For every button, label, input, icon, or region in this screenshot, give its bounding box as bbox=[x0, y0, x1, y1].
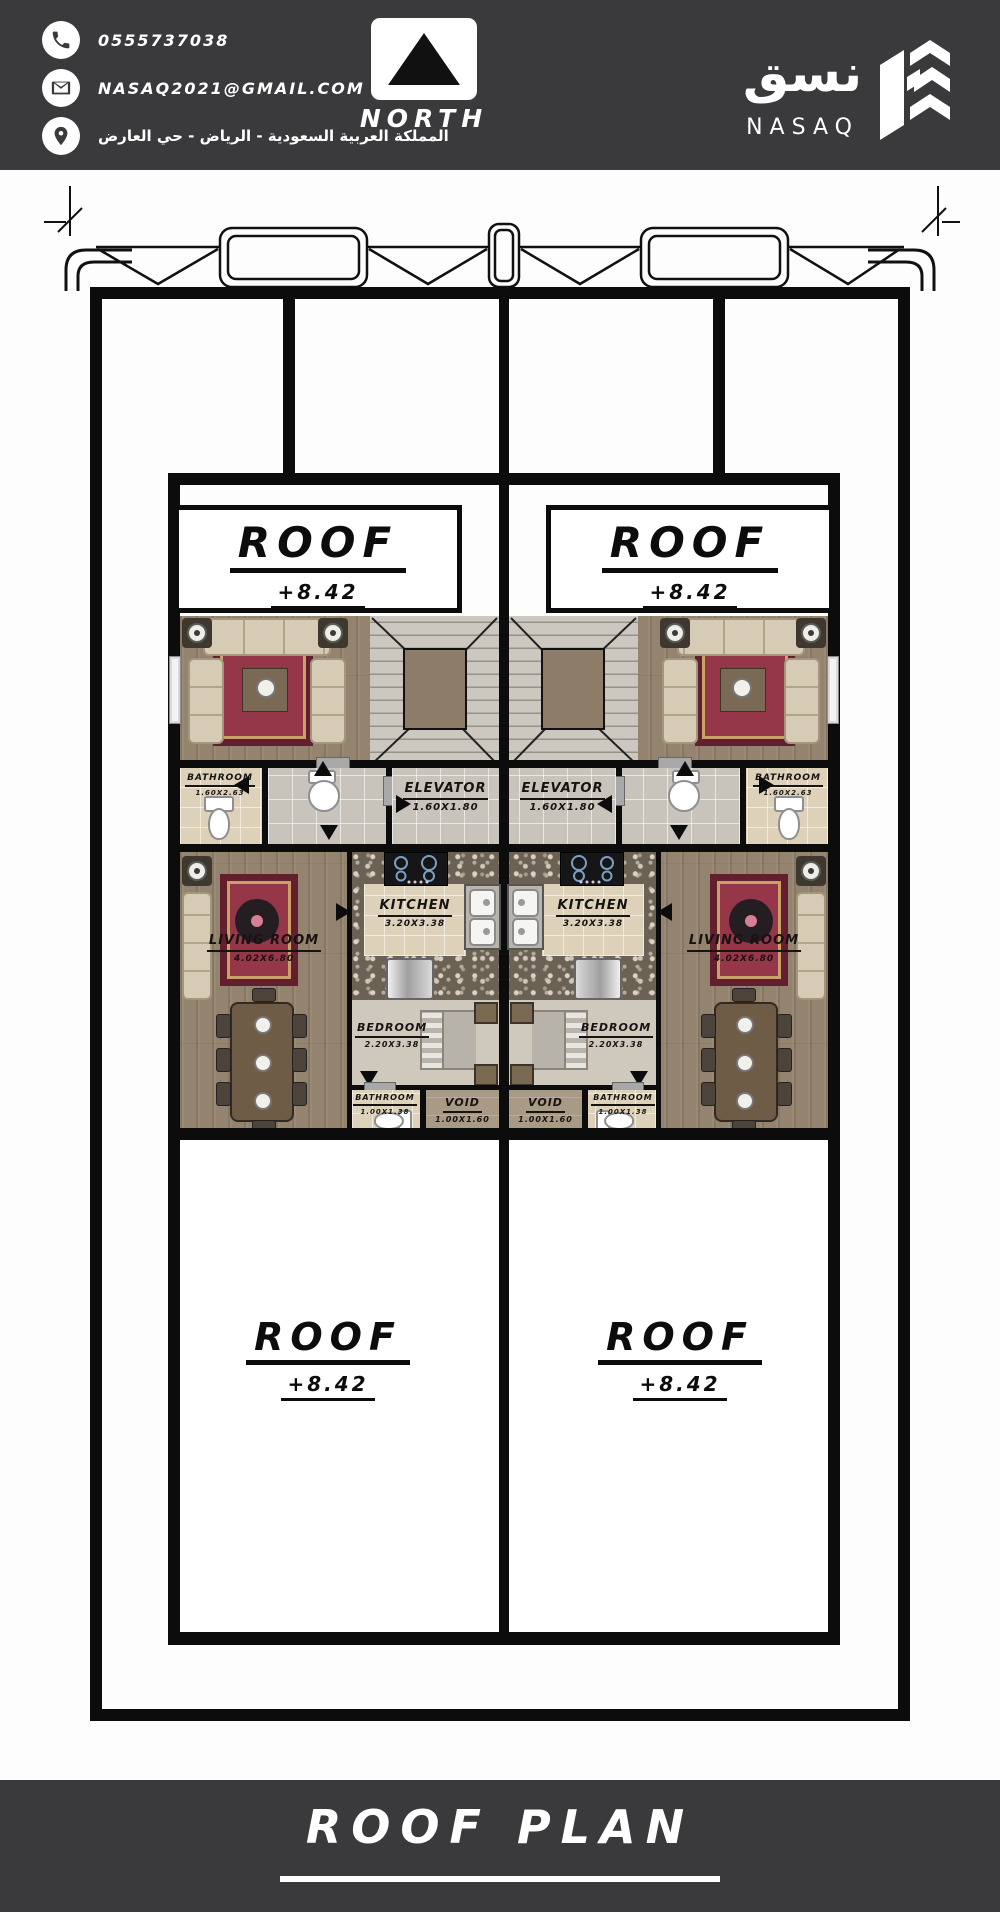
room-label-bathroom2: BATHROOM 1.00X1.38 bbox=[590, 1093, 656, 1117]
chair bbox=[777, 1082, 792, 1106]
door-arrow-icon bbox=[320, 825, 338, 840]
plate bbox=[736, 1054, 754, 1072]
chair bbox=[216, 1014, 231, 1038]
pedestal-sink bbox=[668, 780, 700, 812]
north-indicator-box bbox=[371, 18, 477, 100]
room-label-bedroom: BEDROOM 2.20X3.38 bbox=[579, 1021, 653, 1050]
plate bbox=[254, 1016, 272, 1034]
door-arrow-icon bbox=[396, 795, 411, 813]
dimension-hook-right bbox=[922, 186, 960, 236]
bed-blanket bbox=[442, 1012, 476, 1068]
chair bbox=[701, 1048, 716, 1072]
stair-landing bbox=[403, 648, 467, 730]
coffee-table-plate bbox=[732, 678, 752, 698]
unit-side-wall bbox=[168, 473, 180, 1645]
chair bbox=[777, 1048, 792, 1072]
unit-right: ROOF +8.42 LIVING ROOM 3.40X4.40 bbox=[509, 473, 840, 1645]
interior-wall bbox=[168, 1128, 499, 1140]
room-living2 bbox=[180, 852, 347, 1134]
chair bbox=[292, 1082, 307, 1106]
party-wall bbox=[499, 287, 509, 1645]
roof-level: +8.42 bbox=[643, 580, 736, 609]
rug-flower bbox=[745, 915, 757, 927]
room-label-void: VOID 1.00X1.60 bbox=[509, 1096, 582, 1125]
logo-wordmark: NASAQ bbox=[735, 115, 870, 140]
toilet-bowl bbox=[778, 808, 800, 840]
interior-wall bbox=[509, 1128, 840, 1140]
door-arrow-icon bbox=[759, 776, 774, 794]
sink-basin bbox=[469, 889, 496, 917]
contact-email-row: NASAQ2021@GMAIL.COM bbox=[42, 69, 365, 107]
interior-wall bbox=[509, 844, 828, 852]
kitchen-sink bbox=[507, 884, 544, 950]
room-label-kitchen: KITCHEN 3.20X3.38 bbox=[542, 898, 644, 931]
window bbox=[169, 656, 181, 724]
header-bar: 0555737038 NASAQ2021@GMAIL.COM المملكة ا… bbox=[0, 0, 1000, 170]
door-arrow-icon bbox=[234, 776, 249, 794]
plate bbox=[254, 1054, 272, 1072]
interior-wall bbox=[656, 852, 661, 1134]
location-icon bbox=[42, 117, 80, 155]
room-label-living2: LIVING ROOM 4.02X6.80 bbox=[674, 933, 814, 966]
sofa bbox=[677, 618, 805, 656]
roof-title: ROOF bbox=[602, 522, 778, 573]
chair bbox=[252, 988, 276, 1002]
sofa bbox=[188, 658, 224, 744]
room-living1 bbox=[180, 616, 370, 766]
pedestal-sink bbox=[308, 780, 340, 812]
bed-blanket bbox=[532, 1012, 566, 1068]
sofa bbox=[203, 618, 331, 656]
roof-terrace-label: ROOF +8.42 bbox=[530, 1318, 830, 1401]
toilet-bowl bbox=[208, 808, 230, 840]
chair bbox=[777, 1014, 792, 1038]
roof-label-box: ROOF +8.42 bbox=[546, 505, 834, 613]
plant-pot bbox=[796, 856, 826, 886]
roof-level: +8.42 bbox=[271, 580, 364, 609]
plant-pot bbox=[182, 856, 212, 886]
plate bbox=[254, 1092, 272, 1110]
room-label-bathroom1: BATHROOM 1.60X2.63 bbox=[178, 773, 262, 798]
unit-bottom-wall bbox=[509, 1632, 840, 1645]
door-arrow-icon bbox=[676, 761, 694, 776]
nightstand bbox=[510, 1002, 534, 1024]
rug-flower bbox=[251, 915, 263, 927]
nightstand bbox=[474, 1064, 498, 1086]
north-triangle-icon bbox=[388, 33, 460, 85]
nightstand bbox=[474, 1002, 498, 1024]
plate bbox=[736, 1016, 754, 1034]
plant-pot bbox=[318, 618, 348, 648]
door-arrow-icon bbox=[314, 761, 332, 776]
trash-bin bbox=[386, 958, 434, 1000]
interior-wall bbox=[180, 844, 499, 852]
parapet-corner-right bbox=[868, 250, 934, 291]
trash-bin bbox=[574, 958, 622, 1000]
sink-basin bbox=[512, 889, 539, 917]
stove bbox=[384, 852, 448, 886]
room-label-kitchen: KITCHEN 3.20X3.38 bbox=[364, 898, 466, 931]
room-label-bedroom: BEDROOM 2.20X3.38 bbox=[355, 1021, 429, 1050]
nightstand bbox=[510, 1064, 534, 1086]
plant-pot bbox=[660, 618, 690, 648]
phone-icon bbox=[42, 21, 80, 59]
room-label-bathroom2: BATHROOM 1.00X1.38 bbox=[352, 1093, 418, 1117]
dining-table bbox=[230, 1002, 294, 1122]
door-arrow-icon bbox=[336, 903, 351, 921]
parapet-planter-left bbox=[220, 228, 367, 287]
roof-plan-poster: 0555737038 NASAQ2021@GMAIL.COM المملكة ا… bbox=[0, 0, 1000, 1912]
sofa bbox=[310, 658, 346, 744]
staircase bbox=[370, 616, 499, 766]
roof-terrace-label: ROOF +8.42 bbox=[178, 1318, 478, 1401]
parapet-corner-left bbox=[66, 250, 132, 291]
chair bbox=[292, 1014, 307, 1038]
room-label-void: VOID 1.00X1.60 bbox=[426, 1096, 499, 1125]
sink-basin bbox=[469, 918, 496, 946]
room-living2 bbox=[661, 852, 828, 1134]
footer-underline bbox=[280, 1876, 720, 1882]
chair bbox=[701, 1082, 716, 1106]
contact-phone-row: 0555737038 bbox=[42, 21, 229, 59]
stair-landing bbox=[541, 648, 605, 730]
north-label: NORTH bbox=[346, 104, 502, 133]
phone-number: 0555737038 bbox=[98, 31, 229, 50]
unit-bottom-wall bbox=[168, 1632, 499, 1645]
chair bbox=[216, 1082, 231, 1106]
plant-pot bbox=[182, 618, 212, 648]
roof-title: ROOF bbox=[230, 522, 406, 573]
kitchen-sink bbox=[464, 884, 501, 950]
chair bbox=[292, 1048, 307, 1072]
rug bbox=[220, 874, 298, 986]
chair bbox=[216, 1048, 231, 1072]
unit-left: ROOF +8.42 LIVING ROOM 3.40X4.40 bbox=[168, 473, 499, 1645]
door-arrow-icon bbox=[670, 825, 688, 840]
door-arrow-icon bbox=[597, 795, 612, 813]
roof-title-group: ROOF +8.42 bbox=[551, 522, 829, 609]
dining-table bbox=[714, 1002, 778, 1122]
parapet-center-column bbox=[489, 224, 519, 287]
plan-canvas: ROOF +8.42 LIVING ROOM 3.40X4.40 bbox=[0, 170, 1000, 1780]
rug bbox=[710, 874, 788, 986]
stove bbox=[560, 852, 624, 886]
room-living1 bbox=[638, 616, 828, 766]
plant-pot bbox=[796, 618, 826, 648]
chair bbox=[701, 1014, 716, 1038]
chair bbox=[732, 988, 756, 1002]
logo-arabic: نسق bbox=[735, 48, 870, 100]
email-text: NASAQ2021@GMAIL.COM bbox=[98, 79, 365, 98]
parapet-planter-right bbox=[641, 228, 788, 287]
plate bbox=[736, 1092, 754, 1110]
door-arrow-icon bbox=[657, 903, 672, 921]
roof-label-box: ROOF +8.42 bbox=[174, 505, 462, 613]
footer-title: ROOF PLAN bbox=[0, 1800, 1000, 1854]
unit-side-wall bbox=[828, 473, 840, 1645]
roof-title-group: ROOF +8.42 bbox=[179, 522, 457, 609]
room-label-living2: LIVING ROOM 4.02X6.80 bbox=[194, 933, 334, 966]
sofa bbox=[662, 658, 698, 744]
email-icon bbox=[42, 69, 80, 107]
staircase bbox=[509, 616, 638, 766]
sofa bbox=[784, 658, 820, 744]
dimension-hook-left bbox=[44, 186, 82, 236]
sink-basin bbox=[512, 918, 539, 946]
window bbox=[827, 656, 839, 724]
logo-building-icon bbox=[880, 25, 952, 149]
coffee-table-plate bbox=[256, 678, 276, 698]
interior-wall bbox=[740, 768, 746, 848]
